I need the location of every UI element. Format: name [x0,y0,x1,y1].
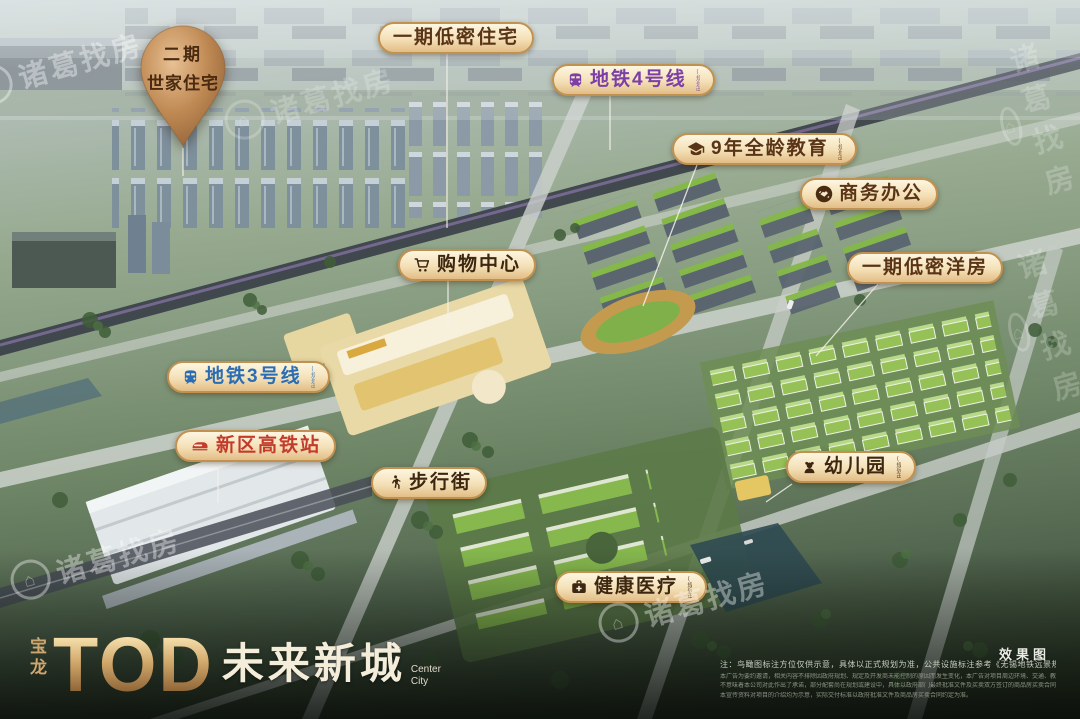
callout-label: 新区高铁站 [216,435,321,457]
watermark-logo-icon: ⌂ [1004,310,1034,354]
watermark-logo-icon: ⌂ [996,104,1026,148]
callout-healthcare: 健康医疗 (规划中) [555,571,707,603]
metro-icon [182,369,199,386]
callout-label: 一期低密住宅 [393,27,519,49]
callout-label: 幼儿园 [824,456,887,478]
callout-phase1-low-density-residence: 一期低密住宅 [378,22,534,54]
walking-person-icon [386,474,403,491]
disclaimer-note: 注：鸟瞰图标注方位仅供示意，具体以正式规划为准，公共设施标注参考《无锡地铁远景规… [720,659,1056,670]
callout-label: 购物中心 [437,254,521,276]
developer-brand-text: 宝龙 [24,637,49,679]
callout-metro-line-3: 地铁3号线 (规划中) [167,361,330,393]
callout-label: 地铁4号线 [590,69,687,91]
pin-label-line1: 二期 [137,40,229,65]
callout-status-suffix: (规划中) [685,576,692,598]
pin-label: 二期 世家住宅 [137,40,229,94]
callout-9year-education: 9年全龄教育 (规划中) [672,133,857,165]
callout-status-suffix: (规划中) [894,456,901,478]
callout-status-suffix: (规划中) [309,366,316,388]
metro-icon [567,72,584,89]
callout-phase1-low-density-houses: 一期低密洋房 [847,252,1003,284]
logo-en-line2: City [411,676,441,688]
aerial-masterplan-rendering: 二期 世家住宅 一期低密住宅 地铁4号线 (规划中) 9年全龄教育 (规划中) … [0,0,1080,719]
project-logo: 宝龙 TOD 未来新城 Center City [24,630,441,695]
callout-label: 一期低密洋房 [862,257,988,279]
high-speed-train-icon [190,437,210,455]
medical-kit-icon [570,578,588,596]
kindergarten-child-icon [801,459,818,476]
fine-print: 本广告为要约邀请，相关内容不排除因政府规划、规定及开发商未能控制的原因而发生变化… [720,673,1056,701]
fine-print-line: 本广告为要约邀请，相关内容不排除因政府规划、规定及开发商未能控制的原因而发生变化… [720,673,1056,682]
phase2-residence-pin: 二期 世家住宅 [137,22,229,148]
pin-label-line2: 世家住宅 [137,69,229,94]
graduation-cap-icon [687,140,705,158]
callout-hsr-station: 新区高铁站 [175,430,336,462]
logo-subtitle-cn: 未来新城 [222,630,406,691]
fine-print-line: 不意味着本公司对此作出了承诺，部分配套尚在规划或建设中，具体以政府部门最终批准文… [720,682,1056,691]
logo-en-line1: Center [411,664,441,676]
callout-business-office: 商务办公 [800,178,938,210]
handshake-icon [815,185,833,203]
callout-label: 步行街 [409,472,472,494]
callout-label: 健康医疗 [594,576,678,598]
callout-status-suffix: (规划中) [836,138,843,160]
logo-title-tod: TOD [53,635,214,695]
callout-shopping-mall: 购物中心 [398,249,536,281]
callout-label: 9年全龄教育 [711,138,829,160]
fine-print-line: 本宣传资料对项目的介绍均为示意，实际交付标准以政府批准文件及商品房买卖合同约定为… [720,692,1056,701]
disclaimer-block: 注：鸟瞰图标注方位仅供示意，具体以正式规划为准，公共设施标注参考《无锡地铁远景规… [720,659,1056,701]
callout-pedestrian-street: 步行街 [371,467,487,499]
watermark-text: 诸葛找房 [1012,232,1080,408]
callout-metro-line-4: 地铁4号线 (规划中) [552,64,715,96]
callout-label: 地铁3号线 [205,366,302,388]
shopping-cart-icon [413,256,431,274]
callout-status-suffix: (规划中) [694,69,701,91]
logo-subtitle-en: Center City [411,664,441,687]
callout-kindergarten: 幼儿园 (规划中) [786,451,916,483]
callout-label: 商务办公 [839,183,923,205]
